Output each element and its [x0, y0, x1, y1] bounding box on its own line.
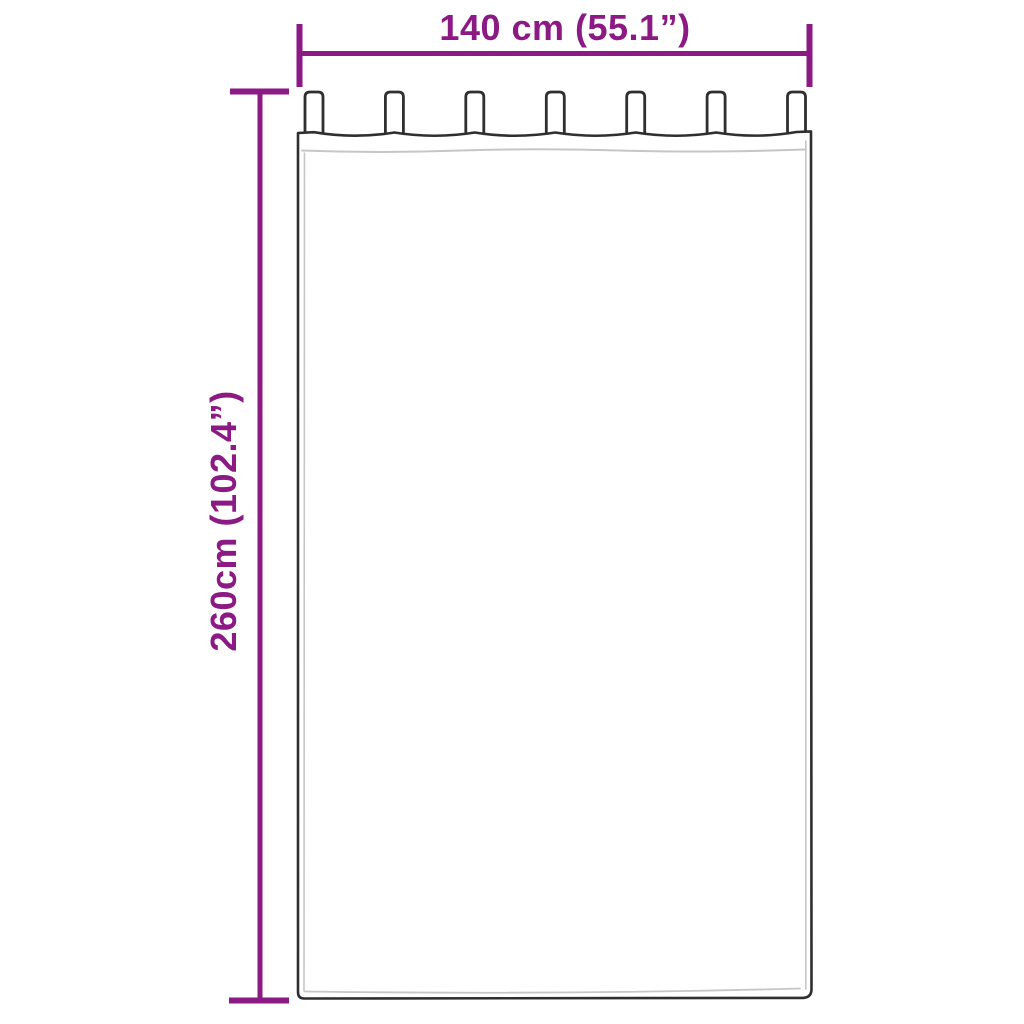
- height-dimension-label: 260cm (102.4”): [202, 311, 246, 731]
- curtain-tab: [305, 92, 323, 135]
- curtain-line-drawing: [0, 0, 1024, 1024]
- curtain-tabs: [305, 92, 806, 135]
- curtain-tab: [546, 92, 564, 135]
- curtain-tab: [466, 92, 484, 135]
- curtain-tab: [707, 92, 725, 135]
- product-dimension-diagram: 140 cm (55.1”) 260cm (102.4”): [0, 0, 1024, 1024]
- curtain-tab: [627, 92, 645, 135]
- width-dimension-label: 140 cm (55.1”): [310, 6, 820, 50]
- curtain-fold-line-left: [304, 153, 305, 991]
- curtain-tab: [385, 92, 403, 135]
- curtain-body: [298, 131, 812, 998]
- curtain-tab: [788, 92, 806, 135]
